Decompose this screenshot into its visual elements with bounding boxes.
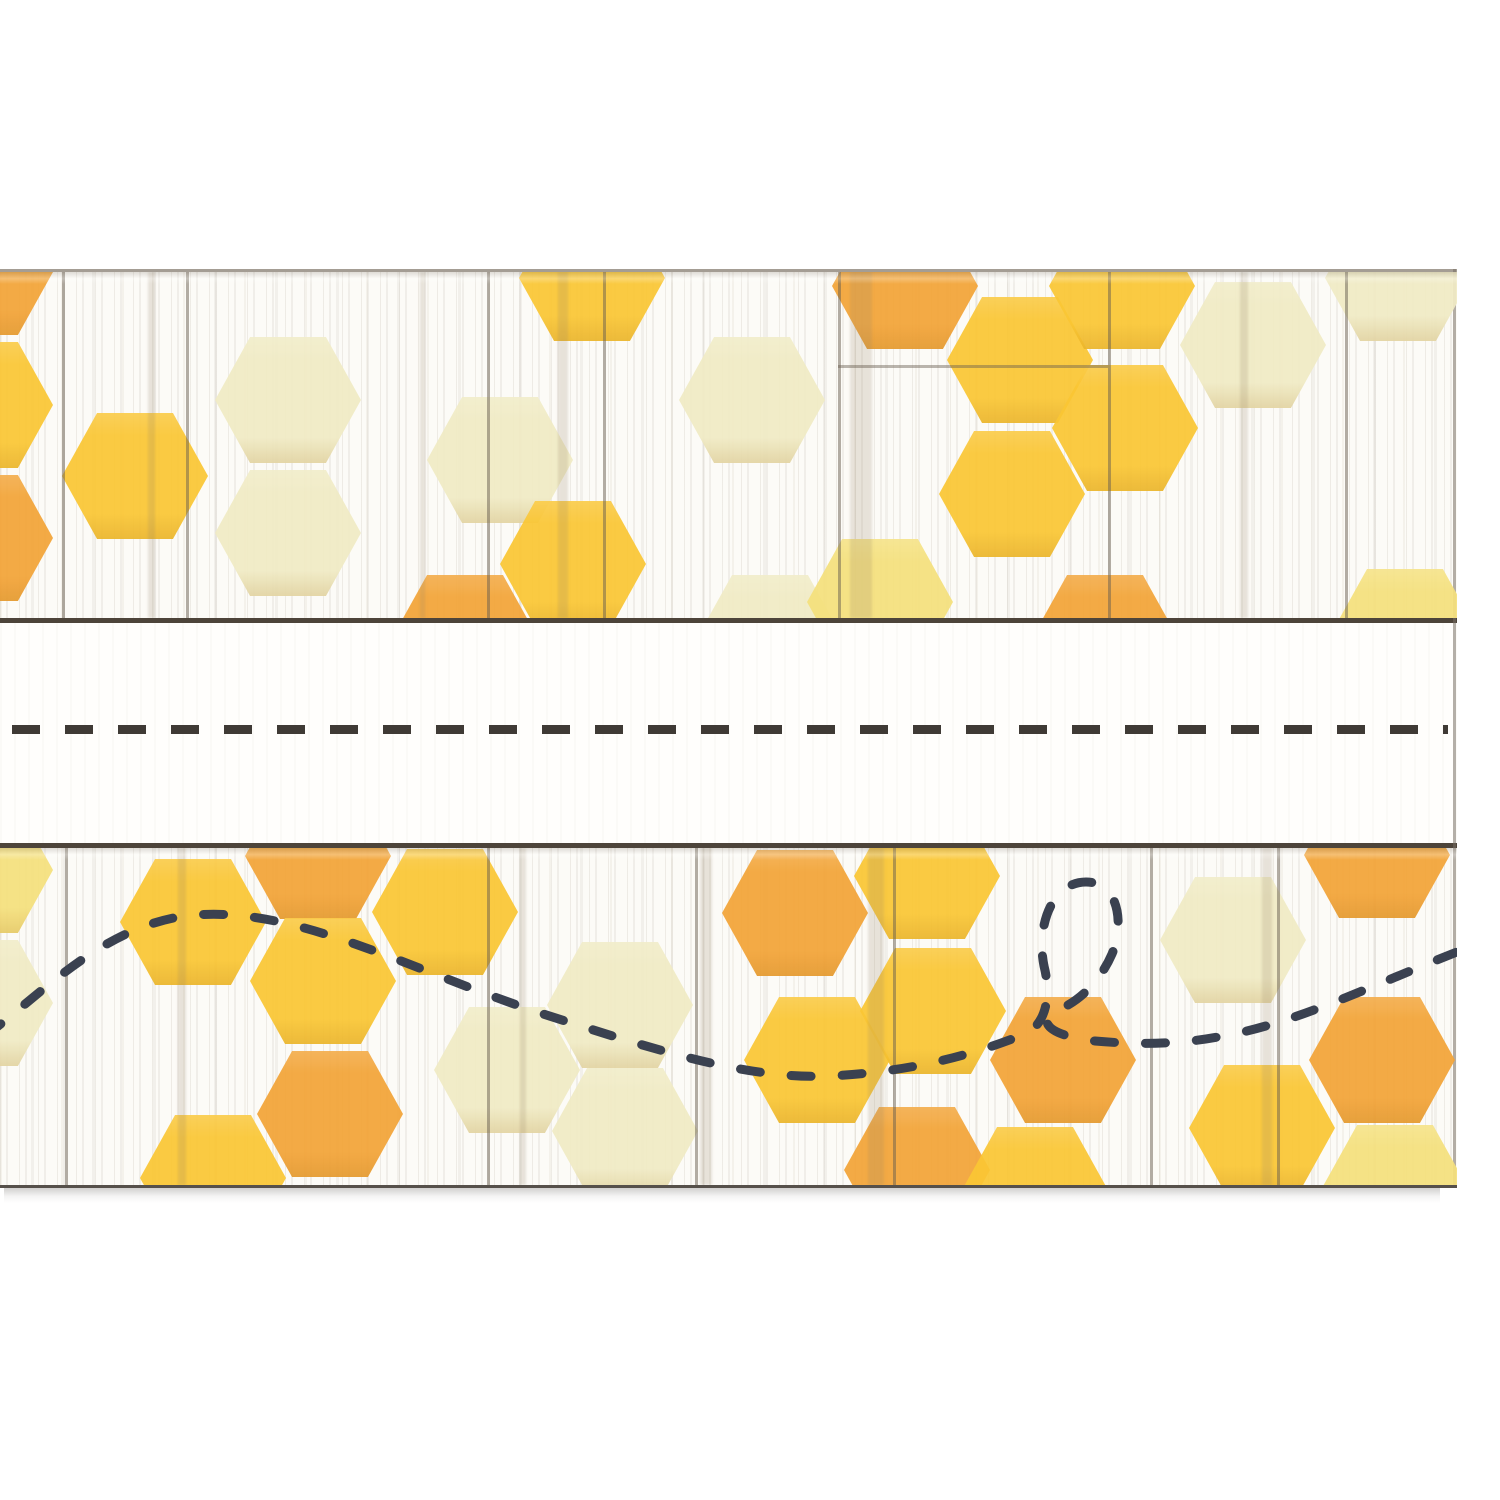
honeycomb-cell-lemon — [807, 539, 953, 618]
name-plate — [0, 269, 1457, 1188]
honeycomb-cell-gold — [0, 342, 53, 468]
wood-grain-streak — [1240, 272, 1248, 618]
writing-strip — [0, 623, 1457, 843]
honeycomb-cell-orange — [0, 272, 53, 335]
wood-grain-streak — [148, 272, 155, 618]
wood-grain-streak — [850, 272, 872, 618]
honeycomb-cell-cream — [1180, 282, 1326, 408]
product-photo-page — [0, 0, 1500, 1500]
honeycomb-cell-gold — [939, 431, 1085, 557]
plank-seam — [838, 272, 841, 618]
wood-grain-streak — [420, 272, 425, 618]
honeycomb-cell-cream — [215, 337, 361, 463]
plank-seam — [603, 272, 606, 618]
plate-drop-shadow — [4, 1188, 1440, 1203]
honeycomb-cell-cream — [679, 337, 825, 463]
honeycomb-cell-orange — [0, 475, 53, 601]
plank-seam — [186, 272, 189, 618]
bottom-honeycomb-band — [0, 848, 1457, 1185]
honeycomb-cell-lemon — [1332, 569, 1457, 618]
wood-grain-streak — [558, 272, 568, 618]
top-honeycomb-band — [0, 272, 1457, 618]
bee-flight-trail-path — [0, 882, 1457, 1076]
plank-seam — [1108, 272, 1111, 618]
plank-seam — [1345, 272, 1348, 618]
name-writing-line — [12, 725, 1448, 734]
honeycomb-cell-orange — [1032, 575, 1178, 618]
honeycomb-cell-gold — [519, 272, 665, 341]
plank-horizontal-joint — [838, 365, 1108, 368]
bee-flight-trail — [0, 848, 1457, 1185]
plank-seam — [62, 272, 65, 618]
honeycomb-cell-cream — [215, 470, 361, 596]
plank-seam — [487, 272, 490, 618]
